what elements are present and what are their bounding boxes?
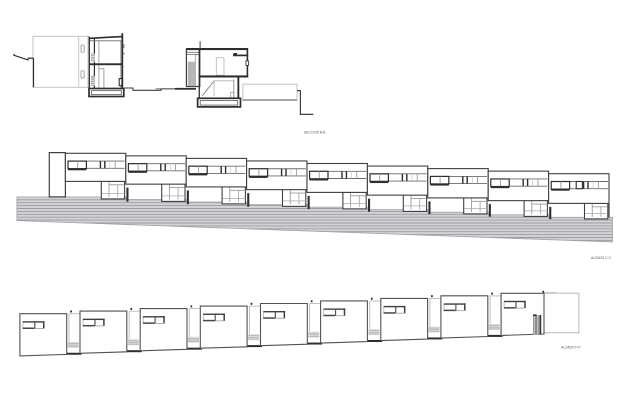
svg-text:SECCIÓN B-B: SECCIÓN B-B xyxy=(304,129,326,134)
svg-text:ALZADO F-F: ALZADO F-F xyxy=(561,345,580,349)
svg-text:ALZADO C-C: ALZADO C-C xyxy=(591,256,612,260)
